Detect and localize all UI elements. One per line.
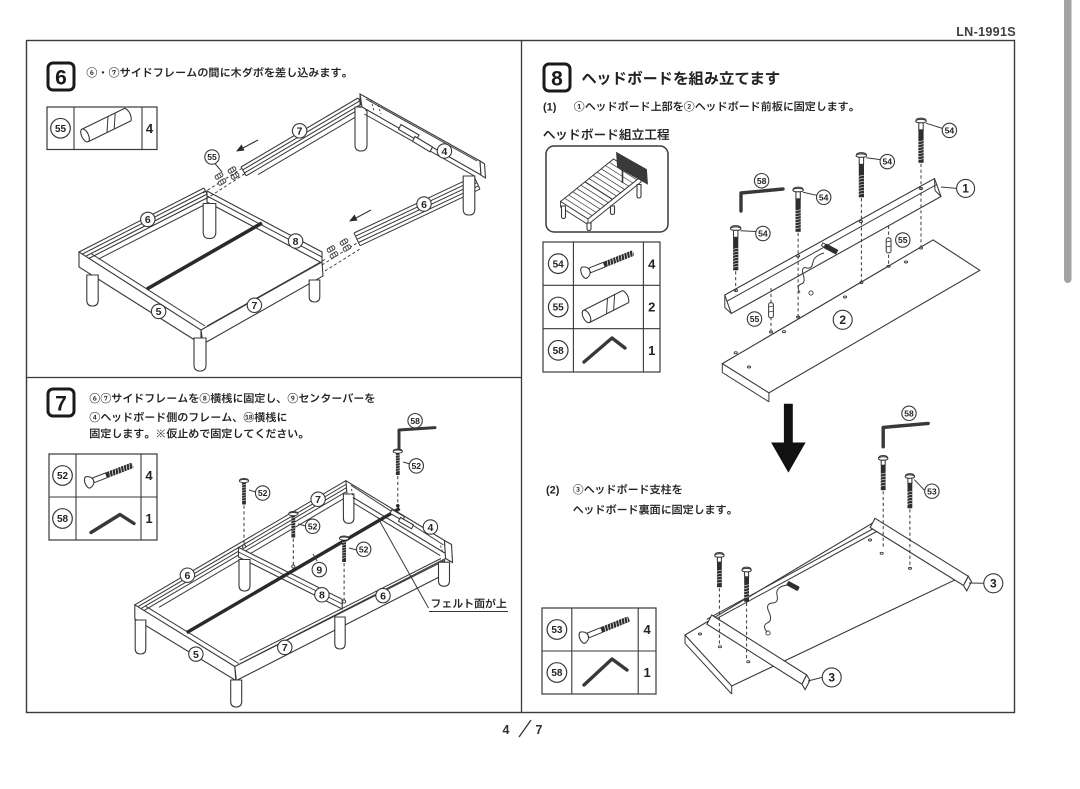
svg-text:(1): (1) bbox=[543, 102, 557, 114]
svg-text:6: 6 bbox=[421, 199, 427, 211]
svg-text:1: 1 bbox=[145, 511, 152, 526]
svg-text:(2): (2) bbox=[546, 485, 560, 497]
svg-text:9: 9 bbox=[316, 564, 322, 576]
svg-text:4: 4 bbox=[643, 622, 651, 637]
svg-text:54: 54 bbox=[819, 192, 829, 202]
svg-text:52: 52 bbox=[57, 471, 69, 482]
svg-text:5: 5 bbox=[193, 649, 199, 661]
svg-text:55: 55 bbox=[207, 152, 217, 162]
svg-text:54: 54 bbox=[553, 259, 565, 270]
svg-text:8: 8 bbox=[551, 68, 563, 91]
svg-text:58: 58 bbox=[904, 408, 914, 418]
svg-text:7: 7 bbox=[251, 300, 257, 312]
svg-text:55: 55 bbox=[553, 303, 565, 314]
svg-text:7: 7 bbox=[282, 642, 288, 654]
svg-text:8: 8 bbox=[319, 590, 325, 602]
svg-text:6: 6 bbox=[55, 67, 67, 90]
svg-text:58: 58 bbox=[757, 176, 767, 186]
svg-text:6: 6 bbox=[145, 214, 151, 226]
svg-text:4: 4 bbox=[427, 522, 433, 534]
svg-text:8: 8 bbox=[293, 236, 299, 248]
svg-text:4: 4 bbox=[145, 468, 153, 483]
svg-text:7: 7 bbox=[536, 723, 543, 737]
svg-text:58: 58 bbox=[553, 346, 565, 357]
svg-text:52: 52 bbox=[308, 521, 318, 531]
svg-text:6: 6 bbox=[184, 570, 190, 582]
svg-text:4: 4 bbox=[441, 146, 447, 158]
svg-text:6: 6 bbox=[380, 590, 386, 602]
svg-text:58: 58 bbox=[551, 668, 563, 679]
svg-text:4: 4 bbox=[503, 723, 510, 737]
svg-text:54: 54 bbox=[883, 157, 893, 167]
svg-text:7: 7 bbox=[315, 494, 321, 506]
svg-text:54: 54 bbox=[945, 126, 955, 136]
svg-text:4: 4 bbox=[146, 121, 154, 136]
svg-text:52: 52 bbox=[258, 488, 268, 498]
svg-text:52: 52 bbox=[359, 544, 369, 554]
svg-text:7: 7 bbox=[297, 126, 303, 138]
svg-text:53: 53 bbox=[551, 625, 563, 636]
svg-text:1: 1 bbox=[962, 182, 969, 196]
svg-text:52: 52 bbox=[412, 461, 422, 471]
svg-text:55: 55 bbox=[750, 314, 760, 324]
svg-text:7: 7 bbox=[55, 393, 67, 416]
svg-text:1: 1 bbox=[643, 665, 650, 680]
svg-text:58: 58 bbox=[57, 514, 69, 525]
svg-text:4: 4 bbox=[648, 256, 656, 271]
svg-text:58: 58 bbox=[410, 416, 420, 426]
svg-text:55: 55 bbox=[55, 124, 67, 135]
svg-text:2: 2 bbox=[839, 313, 846, 327]
svg-text:LN-1991S: LN-1991S bbox=[956, 25, 1016, 39]
svg-text:54: 54 bbox=[758, 229, 768, 239]
svg-text:5: 5 bbox=[156, 306, 162, 318]
svg-text:53: 53 bbox=[927, 486, 937, 496]
svg-text:3: 3 bbox=[990, 577, 997, 591]
svg-text:1: 1 bbox=[648, 343, 655, 358]
svg-text:2: 2 bbox=[648, 300, 655, 315]
svg-text:55: 55 bbox=[898, 235, 908, 245]
svg-text:3: 3 bbox=[828, 671, 835, 685]
